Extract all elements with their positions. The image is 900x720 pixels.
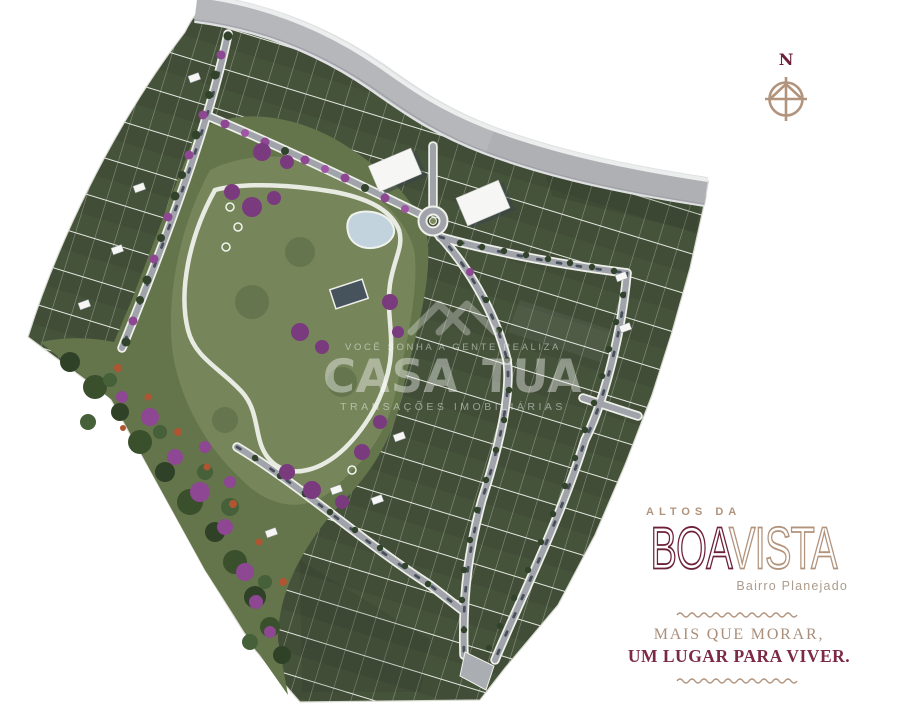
slogan-line-2: UM LUGAR PARA VIVER. <box>616 646 862 667</box>
compass-north-label: N <box>748 52 824 68</box>
logo-word-boa: BOA <box>650 515 729 582</box>
compass: N <box>748 52 824 129</box>
compass-rose-icon <box>749 69 823 129</box>
logo-word-vista: VISTA <box>729 515 837 582</box>
wavy-divider-icon <box>675 610 803 619</box>
slogan-line-1: MAIS QUE MORAR, <box>616 626 862 644</box>
pond <box>347 212 394 248</box>
brand-logotype: BOAVISTA <box>650 519 827 578</box>
masterplan-poster: VOCÊ SONHA A GENTE REALIZA CASA TUA TRAN… <box>0 0 900 720</box>
wavy-divider-icon <box>675 676 803 685</box>
brand-panel: ALTOS DA BOAVISTA Bairro Planejado MAIS … <box>616 506 862 692</box>
